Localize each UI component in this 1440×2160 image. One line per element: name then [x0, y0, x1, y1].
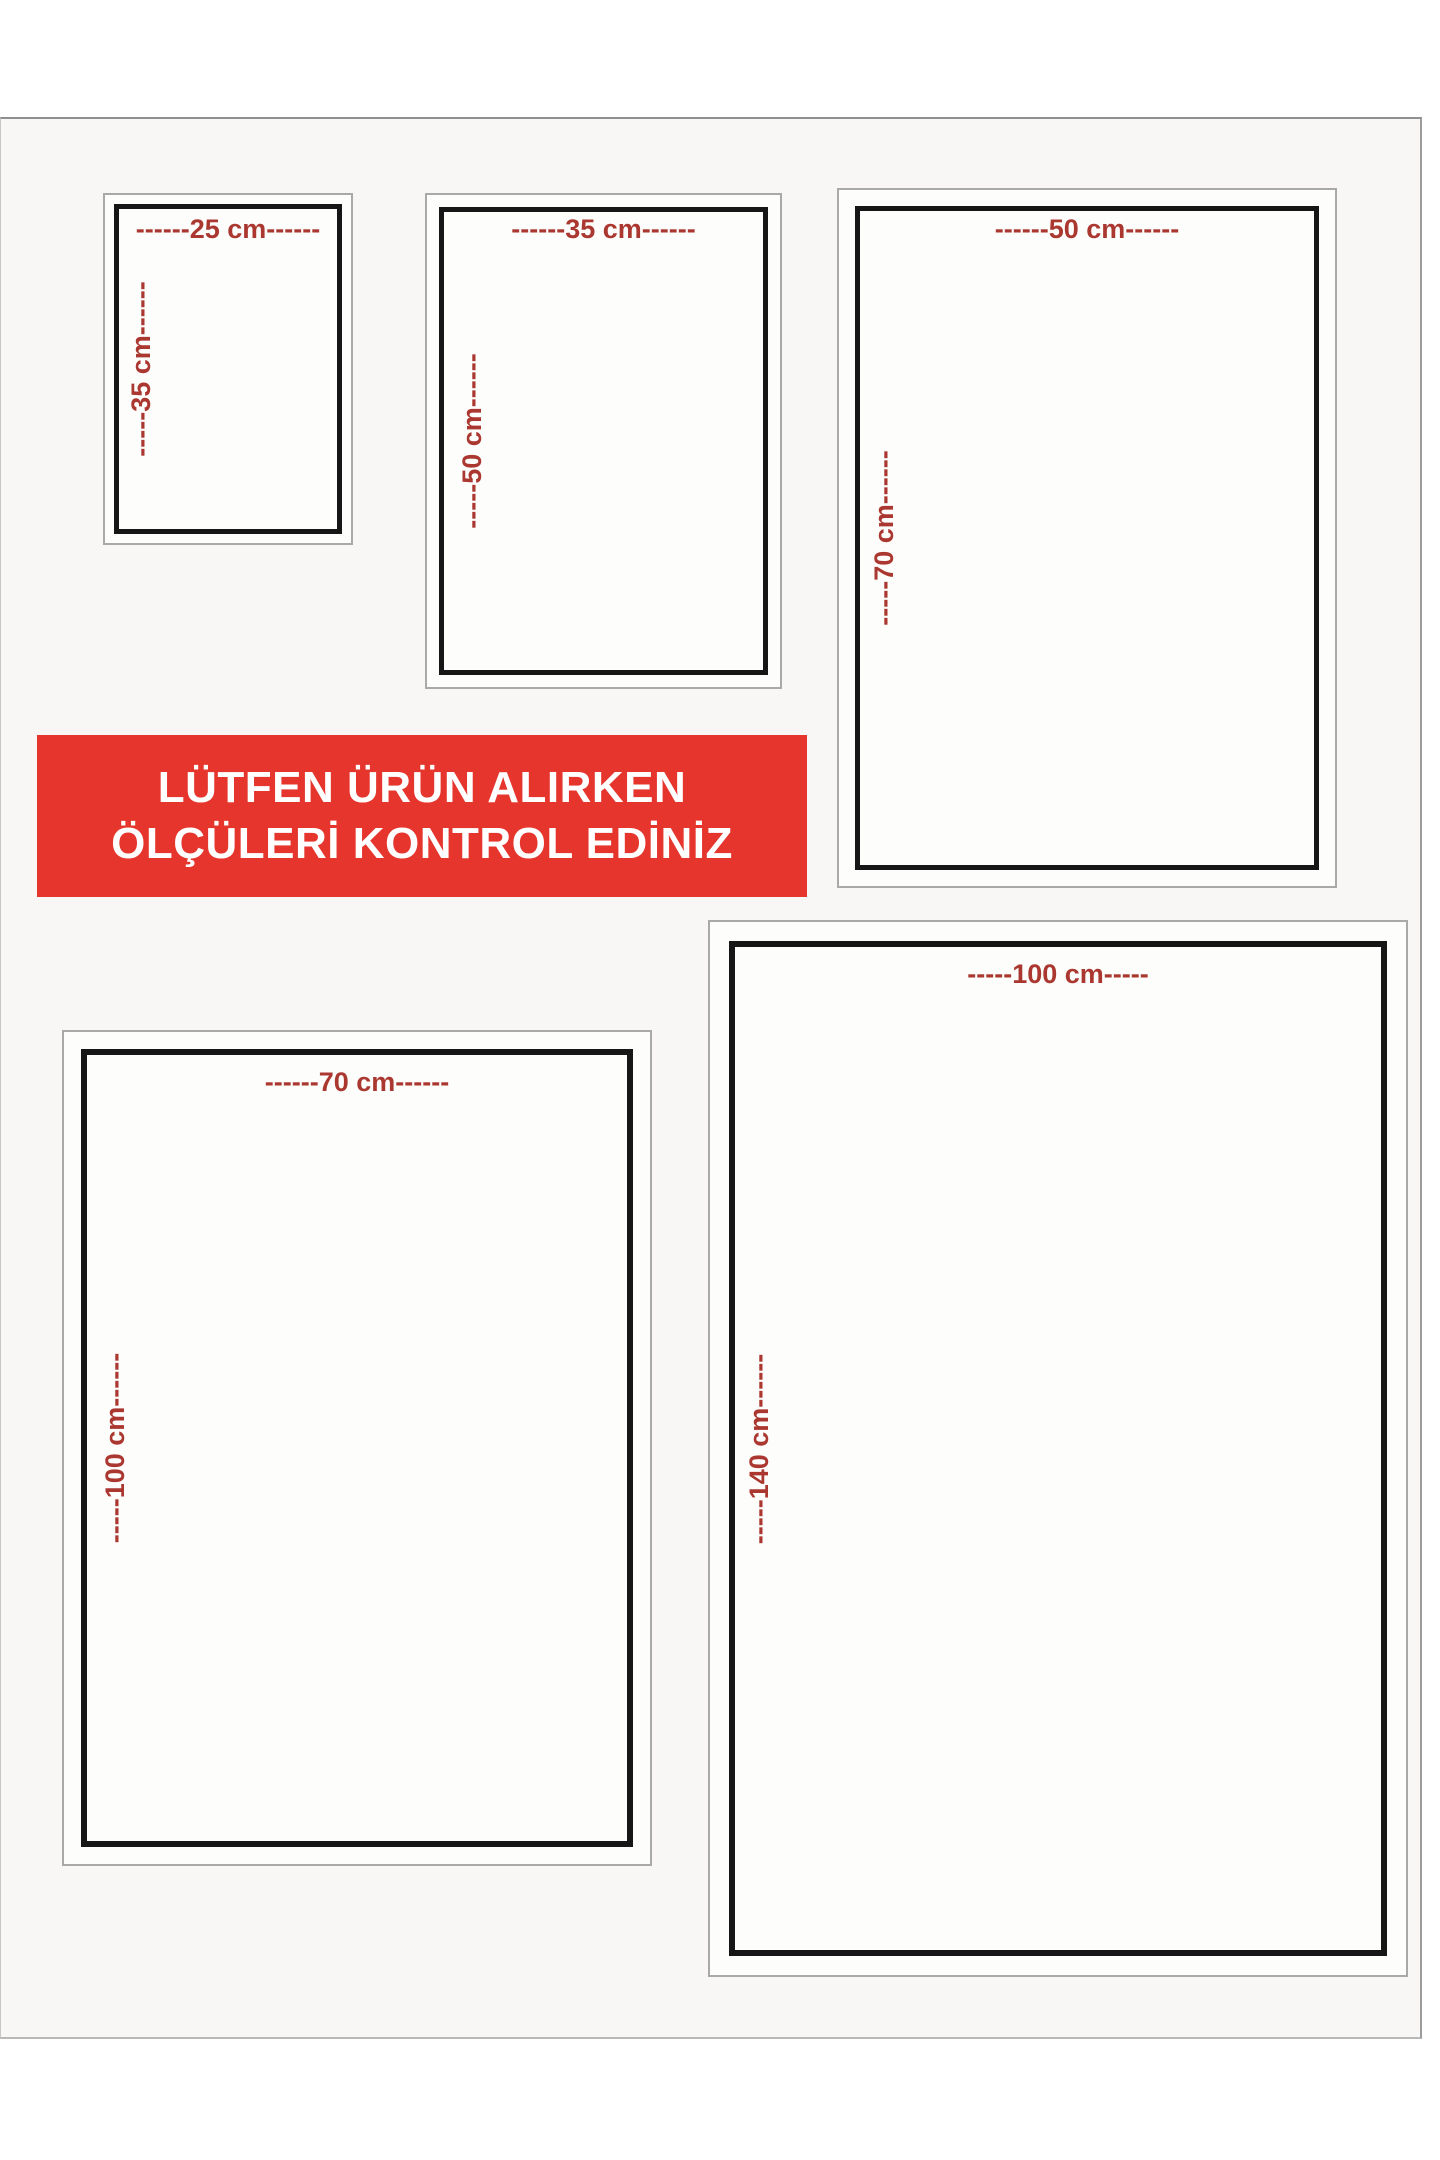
size-box-70x100: ------70 cm------ -----100 cm------ [62, 1030, 652, 1866]
size-chart-canvas: ------25 cm------ -----35 cm------ -----… [0, 0, 1440, 2160]
height-label-35cm: -----35 cm------ [126, 281, 156, 456]
size-box-35x50: ------35 cm------ -----50 cm------ [425, 193, 782, 689]
size-box-35x50-frame [439, 207, 768, 675]
width-label-35cm: ------35 cm------ [427, 214, 780, 244]
size-box-70x100-frame [81, 1049, 633, 1847]
height-label-140cm: -----140 cm------ [744, 1353, 774, 1543]
width-label-70cm: ------70 cm------ [64, 1067, 650, 1097]
height-label-100cm: -----100 cm------ [100, 1353, 130, 1543]
size-box-25x35: ------25 cm------ -----35 cm------ [103, 193, 353, 545]
size-box-100x140-frame [729, 941, 1387, 1956]
warning-banner-line1: LÜTFEN ÜRÜN ALIRKEN [158, 766, 687, 810]
size-box-50x70-frame [855, 206, 1319, 870]
height-label-70cm: -----70 cm------ [869, 450, 899, 625]
size-box-50x70: ------50 cm------ -----70 cm------ [837, 188, 1337, 888]
height-label-50cm: -----50 cm------ [457, 353, 487, 528]
size-box-100x140: -----100 cm----- -----140 cm------ [708, 920, 1408, 1977]
warning-banner: LÜTFEN ÜRÜN ALIRKEN ÖLÇÜLERİ KONTROL EDİ… [37, 735, 807, 897]
width-label-25cm: ------25 cm------ [105, 214, 351, 244]
width-label-50cm: ------50 cm------ [839, 214, 1335, 244]
warning-banner-line2: ÖLÇÜLERİ KONTROL EDİNİZ [111, 822, 733, 866]
width-label-100cm: -----100 cm----- [710, 959, 1406, 989]
